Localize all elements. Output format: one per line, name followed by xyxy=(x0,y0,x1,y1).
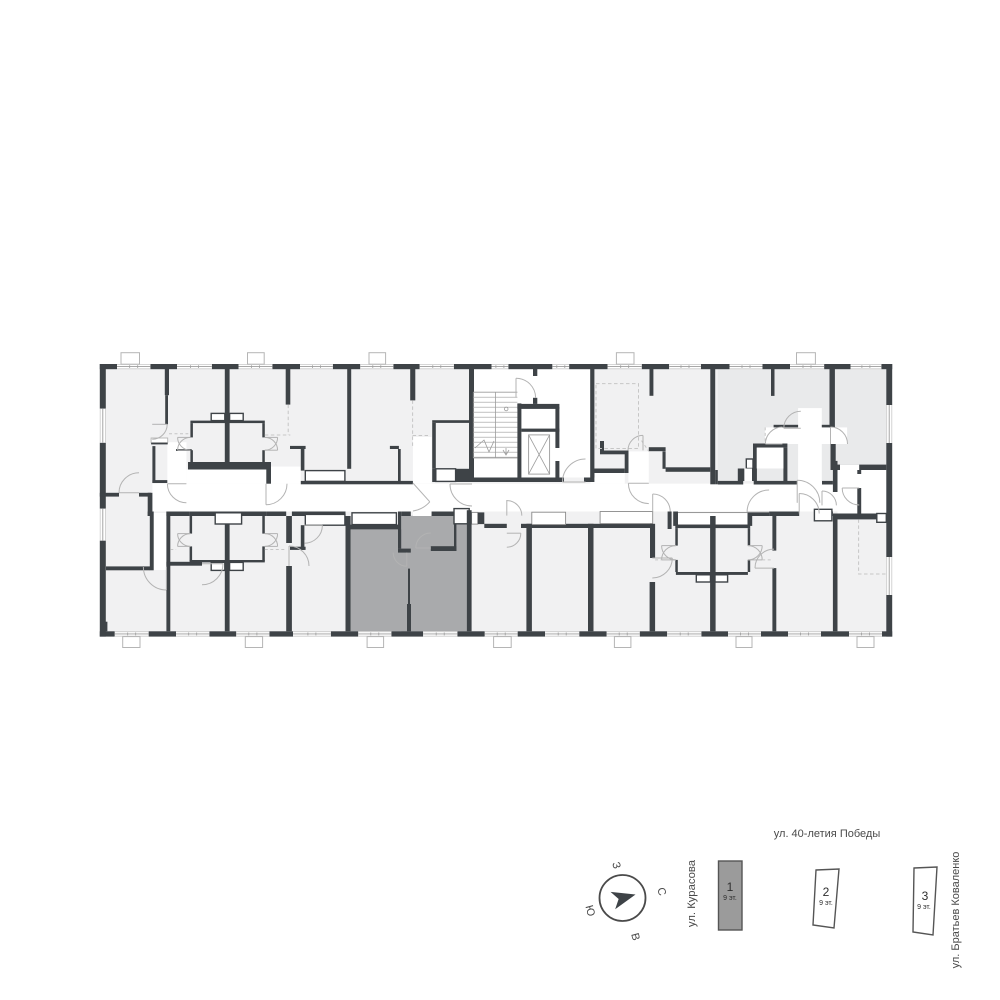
svg-text:9 эт.: 9 эт. xyxy=(723,895,737,902)
svg-text:9 эт.: 9 эт. xyxy=(917,904,931,911)
svg-text:ул. Братьев Коваленко: ул. Братьев Коваленко xyxy=(950,852,962,969)
svg-text:3: 3 xyxy=(922,889,929,903)
svg-text:ул. Курасова: ул. Курасова xyxy=(686,859,698,927)
svg-text:9 эт.: 9 эт. xyxy=(819,900,833,907)
svg-text:ул. 40-летия Победы: ул. 40-летия Победы xyxy=(774,828,881,840)
svg-text:1: 1 xyxy=(727,880,734,894)
svg-text:2: 2 xyxy=(823,885,830,899)
